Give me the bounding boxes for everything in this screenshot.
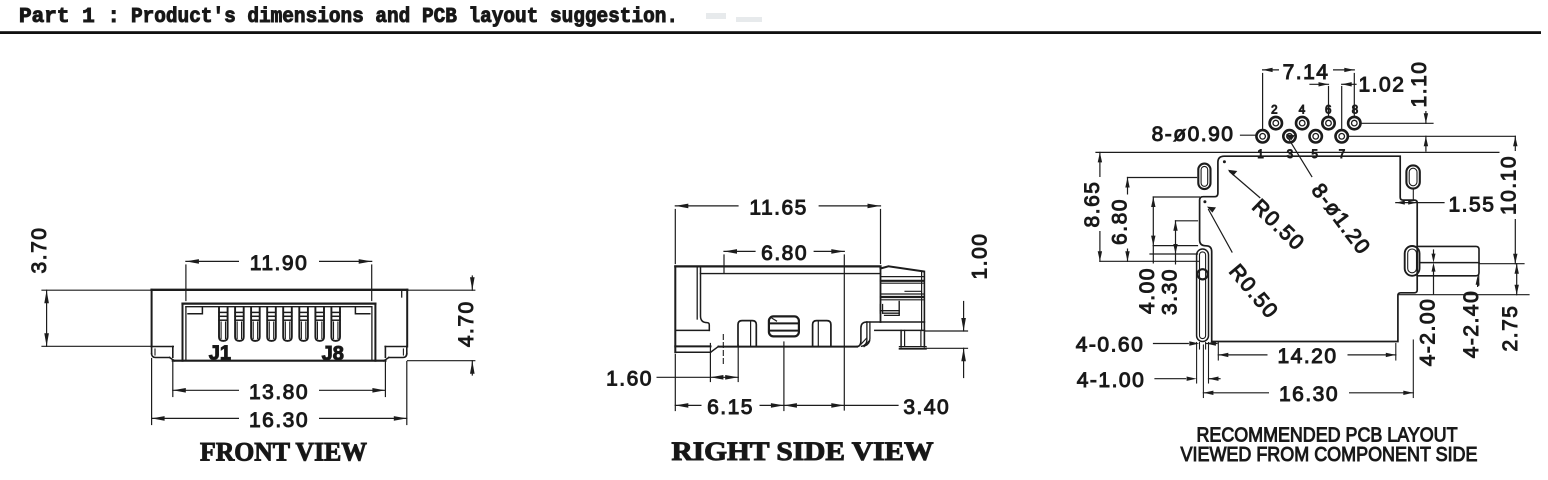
svg-text:4-0.60: 4-0.60 — [1076, 334, 1145, 357]
svg-text:7: 7 — [1339, 149, 1345, 161]
svg-text:1.00: 1.00 — [969, 233, 992, 280]
svg-text:8: 8 — [1352, 105, 1358, 117]
svg-text:1.02: 1.02 — [1359, 74, 1406, 97]
svg-text:6.15: 6.15 — [707, 396, 754, 419]
svg-text:4: 4 — [1299, 105, 1306, 117]
svg-text:1.55: 1.55 — [1449, 194, 1496, 217]
svg-text:6.80: 6.80 — [1108, 198, 1131, 245]
svg-text:11.65: 11.65 — [749, 197, 808, 220]
svg-text:RIGHT SIDE VIEW: RIGHT SIDE VIEW — [672, 437, 934, 466]
svg-text:5: 5 — [1311, 149, 1317, 161]
svg-text:J1: J1 — [209, 343, 231, 365]
svg-text:11.90: 11.90 — [250, 252, 309, 275]
svg-text:Product's dimensions and PCB l: Product's dimensions and PCB layout sugg… — [131, 5, 678, 29]
svg-text:10.10: 10.10 — [1498, 155, 1521, 215]
svg-text:FRONT VIEW: FRONT VIEW — [200, 438, 367, 467]
svg-text:4-2.40: 4-2.40 — [1460, 290, 1483, 359]
svg-text:Part 1 :: Part 1 : — [19, 5, 120, 29]
svg-text:14.20: 14.20 — [1277, 345, 1337, 368]
svg-text:8-ø0.90: 8-ø0.90 — [1152, 123, 1235, 146]
svg-text:16.30: 16.30 — [249, 409, 309, 432]
svg-text:3.40: 3.40 — [903, 396, 950, 419]
svg-text:16.30: 16.30 — [1279, 383, 1339, 406]
svg-text:3: 3 — [1287, 149, 1293, 161]
svg-text:1.10: 1.10 — [1408, 61, 1431, 108]
svg-text:3.70: 3.70 — [28, 227, 51, 274]
svg-text:13.80: 13.80 — [249, 381, 309, 404]
svg-text:7.14: 7.14 — [1283, 61, 1330, 84]
svg-text:4.00: 4.00 — [1136, 267, 1159, 314]
svg-text:4-2.00: 4-2.00 — [1416, 298, 1439, 367]
svg-text:8.65: 8.65 — [1081, 181, 1104, 228]
svg-text:6.80: 6.80 — [761, 242, 808, 265]
svg-text:1.60: 1.60 — [606, 368, 653, 391]
svg-text:1: 1 — [1257, 149, 1263, 161]
svg-text:2: 2 — [1271, 105, 1277, 117]
svg-text:VIEWED FROM COMPONENT SIDE: VIEWED FROM COMPONENT SIDE — [1181, 443, 1478, 466]
svg-text:J8: J8 — [322, 343, 344, 365]
svg-text:4-1.00: 4-1.00 — [1077, 369, 1146, 392]
svg-text:4.70: 4.70 — [455, 300, 478, 347]
svg-text:2.75: 2.75 — [1499, 305, 1522, 352]
svg-text:3.30: 3.30 — [1158, 268, 1181, 315]
